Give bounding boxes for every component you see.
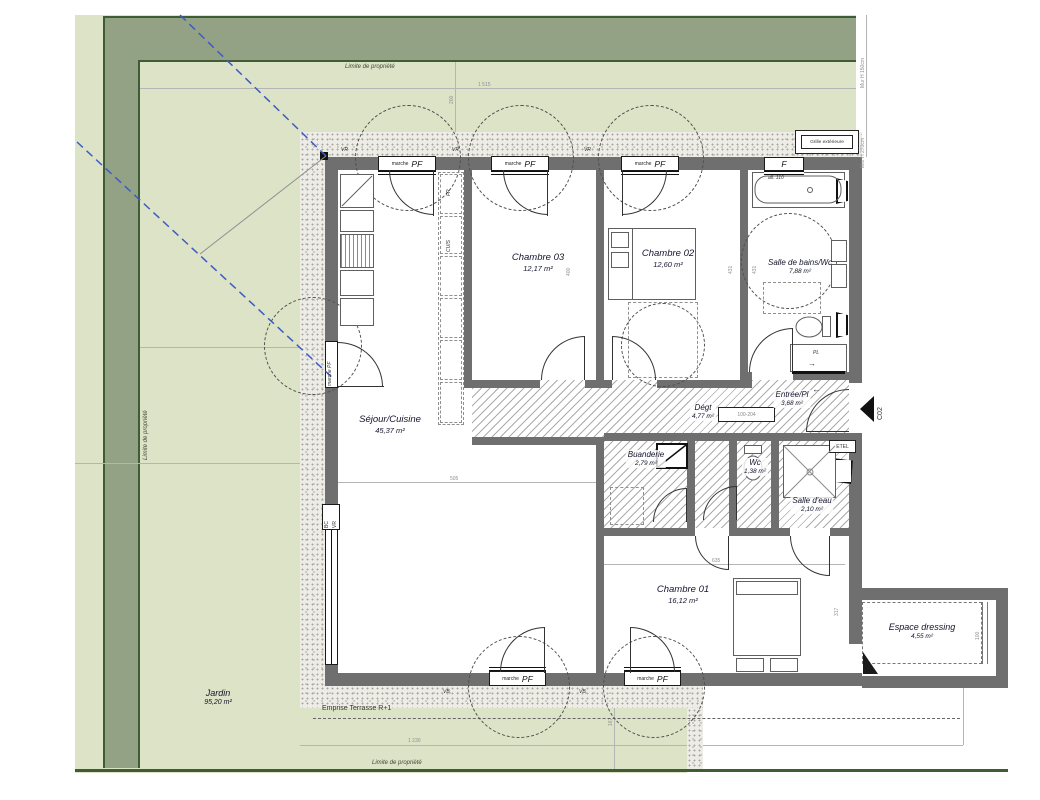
bathroom-radiator-1 <box>836 178 848 204</box>
door-leaf-ch01 <box>728 536 729 570</box>
partition-block-bottom-1 <box>604 528 695 536</box>
hedge-line-top-inner <box>138 60 856 62</box>
dim-line-sejour <box>338 482 596 483</box>
room-label-chambre01: Chambre 01 16,12 m² <box>657 584 709 605</box>
shutter-vb-2: VB <box>579 689 586 695</box>
window-pf-bottom-2: marche PF <box>624 671 681 686</box>
closet-pl-arrow: → <box>808 359 816 368</box>
bathtub <box>752 172 845 208</box>
kitchen-unit-5 <box>440 382 462 423</box>
property-limit-top: Limite de propriété <box>345 64 395 70</box>
door-leaf-buanderie <box>686 488 687 522</box>
room-label-degagement: Dégt 4,77 m² <box>690 403 716 421</box>
wall-right-upper <box>849 157 862 383</box>
dim-ch02: 431 <box>728 266 734 274</box>
kitchen-counter-1 <box>340 210 374 232</box>
door-leaf-left-wall <box>338 386 384 387</box>
partition-block-bottom-2 <box>729 528 790 536</box>
shutter-vr-label: VR <box>332 521 338 528</box>
room-area: 16,12 m² <box>657 596 709 605</box>
floor-plan: Limite de propriété Limite de propriété … <box>0 0 1040 800</box>
dim-line-top-vertical <box>455 62 456 132</box>
bed-ch01-bench-1 <box>736 658 764 672</box>
room-label-salle-eau: Salle d'eau 2,10 m² <box>790 496 833 514</box>
wall-dressing-top <box>862 588 1008 600</box>
terrace-left <box>300 157 325 708</box>
room-name: Salle d'eau <box>790 496 833 506</box>
bathroom-dashed-zone <box>763 282 821 314</box>
hedge-band-top <box>105 18 856 62</box>
door-leaf-pf-bottom-2 <box>630 627 631 673</box>
door-leaf-pf-bottom-1 <box>544 627 545 673</box>
mur-height-top-label: Mur H 150cm <box>860 58 866 88</box>
kitchen-counter-2 <box>340 270 374 296</box>
dim-sejour: 505 <box>450 476 458 482</box>
dim-top-left: 200 <box>449 96 455 104</box>
kitchen-sink <box>340 234 374 268</box>
terrace-emprise-label: Emprise Terrasse R+1 <box>322 705 391 712</box>
window-bay-glazing-line <box>331 529 332 664</box>
partition-long-vertical <box>596 437 604 686</box>
door-leaf-ch03 <box>584 336 585 380</box>
window-f-bathroom: F <box>764 157 804 171</box>
room-area: 2,10 m² <box>790 506 833 514</box>
dim-bottom: 1 230 <box>408 738 421 744</box>
partition-ch03-left <box>464 170 472 388</box>
room-name: Espace dressing <box>889 622 956 633</box>
closet-pl <box>790 344 847 372</box>
hedge-line-left-outer <box>103 16 105 768</box>
kitchen-unit-3 <box>440 298 462 338</box>
wall-bottom <box>325 673 862 686</box>
partition-block-top <box>604 433 849 441</box>
partition-sejour-corridor <box>472 437 600 445</box>
window-pf-top-2: marche PF <box>491 156 549 171</box>
dim-ch01-h: 317 <box>834 608 840 616</box>
room-label-sdb: Salle de bains/Wc 7,88 m² <box>768 258 832 276</box>
window-marche-label: marche <box>637 676 654 682</box>
bed-ch02-pillow-2 <box>611 252 629 268</box>
door-code-label: 100-204 <box>737 412 755 418</box>
kitchen-unit-2 <box>440 256 462 296</box>
window-pf-label: PF <box>654 159 665 169</box>
garden-area: 95,20 m² <box>204 699 232 708</box>
window-marche-label: marche <box>635 161 652 167</box>
partition-sdb-bottom-1 <box>740 372 752 380</box>
door-leaf-salle-eau <box>829 536 830 576</box>
room-area: 3,68 m² <box>774 400 811 408</box>
bathroom-vanity-2 <box>831 264 847 288</box>
corner-marker <box>320 152 328 160</box>
window-pf-bottom-1: marche PF <box>489 671 546 686</box>
window-f-label: F <box>781 159 786 169</box>
washing-machine <box>610 487 644 525</box>
room-name: Salle de bains/Wc <box>768 258 832 268</box>
wall-dressing-bottom <box>862 676 1008 688</box>
shutter-vr-3: VR <box>584 147 591 153</box>
hedge-line-bottom <box>75 769 1008 772</box>
etel-label: ETEL <box>836 444 849 450</box>
bed-ch02-pillow-1 <box>611 232 629 248</box>
room-name: Chambre 02 <box>642 248 694 260</box>
partition-corridor-4 <box>740 380 752 388</box>
hedge-band-left <box>105 18 140 768</box>
room-area: 12,60 m² <box>642 260 694 269</box>
room-label-chambre02: Chambre 02 12,60 m² <box>642 248 694 269</box>
property-limit-bottom: Limite de propriété <box>372 760 422 766</box>
door-leaf-entrance <box>806 431 849 432</box>
room-area: 12,17 m² <box>512 264 564 273</box>
bed-ch02-headline <box>632 228 633 300</box>
toilet-tank-wc <box>744 445 762 454</box>
bathroom-vanity-1 <box>831 240 847 262</box>
window-marche-label: marche <box>392 161 409 167</box>
room-area: 7,88 m² <box>768 268 832 276</box>
bathtub-allege-label: all. 110 <box>768 175 784 181</box>
dim-ch03: 400 <box>566 268 572 276</box>
shutter-bc-label: BC <box>324 521 330 528</box>
room-area: 45,37 m² <box>359 426 421 435</box>
partition-block-bottom-3 <box>830 528 849 536</box>
partition-corridor-2 <box>585 380 612 388</box>
door-leaf-ch02 <box>612 336 613 380</box>
fridge-label: FR <box>446 189 452 196</box>
dim-line-top <box>140 88 856 89</box>
partition-ch03-ch02 <box>596 170 604 388</box>
hedge-line-left-inner <box>138 60 140 768</box>
room-label-dressing: Espace dressing 4,55 m² <box>889 622 956 641</box>
door-leaf-wc <box>736 486 737 520</box>
partition-buanderie-right <box>687 441 695 528</box>
dim-line-right <box>866 15 867 157</box>
entrance-arrow: ← <box>812 384 821 394</box>
shutter-vr-1: VR <box>341 147 348 153</box>
window-marche-label: marche <box>502 676 519 682</box>
room-name: Chambre 03 <box>512 252 564 264</box>
kitchen-counter-3 <box>340 298 374 326</box>
window-left-wall-bay <box>325 528 338 665</box>
co2-entrance-arrow-icon <box>860 396 874 422</box>
closet-pl-label: PL <box>813 350 819 356</box>
room-name: Dégt <box>690 403 716 413</box>
room-area: 4,55 m² <box>889 633 956 641</box>
shutter-vb-1: VB <box>443 689 450 695</box>
dim-line-left-2 <box>75 463 325 464</box>
garden-name: Jardin <box>204 688 232 699</box>
room-area: 4,77 m² <box>690 413 716 421</box>
hedge-line-top-outer <box>103 16 856 18</box>
door-code-box: 100-204 <box>718 407 775 422</box>
window-pf-label: PF <box>522 674 533 684</box>
room-label-wc: Wc 1,38 m² <box>742 458 768 476</box>
door-leaf-sdb <box>792 328 793 372</box>
property-limit-left: Limite de propriété <box>143 410 149 460</box>
room-label-chambre03: Chambre 03 12,17 m² <box>512 252 564 273</box>
kitchen-hood <box>340 174 374 208</box>
room-label-sejour: Séjour/Cuisine 45,37 m² <box>359 414 421 435</box>
partition-wc-right <box>771 441 779 528</box>
door-leaf-pf-top-2 <box>547 170 548 216</box>
room-name: Entrée/Pl <box>774 390 811 400</box>
closet-pl-sliding-door <box>792 371 845 374</box>
etel-box: ETEL <box>829 440 856 453</box>
hall-hatch <box>472 380 849 437</box>
grille-exterieure-inner: Grille extérieure <box>801 135 853 149</box>
window-pf-label: PF <box>657 674 668 684</box>
room-name: Buanderie <box>626 450 666 460</box>
room-area: 1,38 m² <box>742 468 768 476</box>
cuisine-label: CUIS <box>446 240 452 252</box>
room-label-buanderie: Buanderie 2,79 m² <box>626 450 666 468</box>
grille-exterieure-label: Grille extérieure <box>810 140 844 145</box>
wall-dressing-right <box>996 588 1008 688</box>
room-name: Wc <box>742 458 768 468</box>
dim-line-bottom <box>300 745 963 746</box>
window-pf-top-3: marche PF <box>621 156 679 171</box>
mur-height-right-label: Mur H 270cm <box>860 138 866 168</box>
partition-corridor-1 <box>464 380 540 388</box>
window-pf-top-1: marche PF <box>378 156 436 171</box>
room-name: Chambre 01 <box>657 584 709 596</box>
window-pf-label: PF <box>524 159 535 169</box>
door-leaf-pf-top-3 <box>622 170 623 216</box>
dressing-rail-2 <box>987 602 988 664</box>
dim-top: 1 515 <box>478 82 491 88</box>
garden-label: Jardin 95,20 m² <box>204 688 232 708</box>
bed-ch01-pillows <box>736 581 798 595</box>
door-pf-left-label: marche PF <box>327 362 333 386</box>
kitchen-unit-4 <box>440 340 462 380</box>
toilet-tank-sdb <box>822 316 831 337</box>
bathroom-radiator-2 <box>836 312 848 338</box>
door-leaf-pf-top-1 <box>433 170 434 216</box>
room-label-entree: Entrée/Pl 3,68 m² <box>774 390 811 408</box>
bed-ch01-bench-2 <box>770 658 798 672</box>
room-name: Séjour/Cuisine <box>359 414 421 426</box>
co2-label: C02 <box>877 407 884 420</box>
dressing-rail-1 <box>982 602 983 664</box>
dim-sdb: 431 <box>752 266 758 274</box>
window-marche-label: marche <box>505 161 522 167</box>
room-area: 2,79 m² <box>626 460 666 468</box>
window-pf-label: PF <box>411 159 422 169</box>
